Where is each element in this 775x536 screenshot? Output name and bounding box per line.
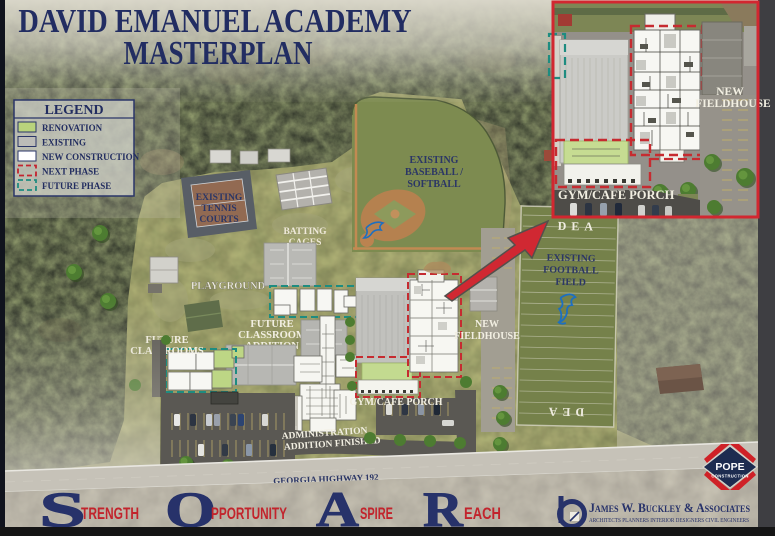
svg-text:GYM/CAFE PORCH: GYM/CAFE PORCH bbox=[558, 188, 675, 202]
svg-text:DEA: DEA bbox=[544, 405, 585, 420]
svg-text:MASTERPLAN: MASTERPLAN bbox=[123, 34, 312, 72]
svg-text:ARCHITECTS PLANNERS INTERIOR: ARCHITECTS PLANNERS INTERIOR DESIGNERS C… bbox=[589, 517, 749, 524]
svg-text:BATTING: BATTING bbox=[283, 227, 327, 237]
svg-text:FUTURE: FUTURE bbox=[250, 319, 293, 330]
svg-text:James W. Buckley & Associates: James W. Buckley & Associates bbox=[589, 500, 750, 515]
svg-text:TENNIS: TENNIS bbox=[201, 204, 236, 214]
svg-text:EACH: EACH bbox=[464, 505, 501, 523]
svg-text:SPIRE: SPIRE bbox=[360, 505, 393, 523]
svg-text:COURTS: COURTS bbox=[199, 215, 238, 225]
svg-text:FOOTBALL: FOOTBALL bbox=[543, 264, 599, 276]
svg-text:FIELD: FIELD bbox=[555, 277, 586, 289]
svg-text:EXISTING: EXISTING bbox=[196, 193, 243, 203]
svg-text:FIELDHOUSE: FIELDHOUSE bbox=[695, 98, 771, 110]
svg-text:RENOVATION: RENOVATION bbox=[42, 123, 103, 133]
svg-text:POPE: POPE bbox=[715, 461, 744, 473]
svg-text:CONSTRUCTION: CONSTRUCTION bbox=[711, 474, 748, 479]
svg-text:NEW CONSTRUCTION: NEW CONSTRUCTION bbox=[42, 152, 140, 162]
svg-text:BASEBALL /: BASEBALL / bbox=[405, 167, 463, 178]
svg-text:FIELDHOUSE: FIELDHOUSE bbox=[454, 331, 520, 342]
svg-text:LEGEND: LEGEND bbox=[44, 103, 103, 118]
svg-text:SOFTBALL: SOFTBALL bbox=[407, 179, 461, 190]
svg-text:DEA: DEA bbox=[558, 219, 599, 234]
svg-text:FUTURE PHASE: FUTURE PHASE bbox=[42, 181, 111, 191]
svg-text:PLAYGROUND: PLAYGROUND bbox=[191, 281, 266, 292]
svg-text:EXISTING: EXISTING bbox=[42, 138, 86, 148]
svg-text:CLASSROOM: CLASSROOM bbox=[238, 330, 306, 341]
svg-text:EXISTING: EXISTING bbox=[410, 155, 459, 166]
svg-text:TRENGTH: TRENGTH bbox=[81, 505, 139, 523]
svg-text:EXISTING: EXISTING bbox=[547, 253, 596, 265]
svg-text:NEW: NEW bbox=[716, 86, 744, 98]
svg-text:GYM/CAFE PORCH: GYM/CAFE PORCH bbox=[349, 397, 442, 408]
svg-text:NEXT PHASE: NEXT PHASE bbox=[42, 167, 99, 177]
svg-text:PPORTUNITY: PPORTUNITY bbox=[211, 505, 287, 523]
svg-text:NEW: NEW bbox=[475, 319, 499, 330]
